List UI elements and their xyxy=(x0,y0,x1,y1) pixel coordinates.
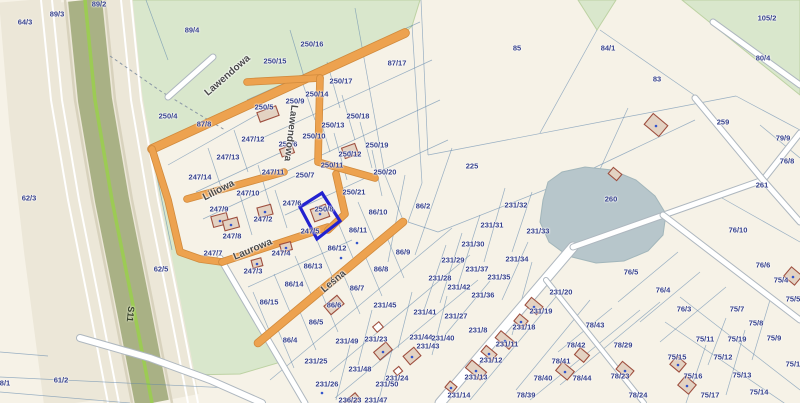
address-dot xyxy=(450,387,453,390)
address-dot xyxy=(520,321,523,324)
street-road xyxy=(247,78,320,82)
map-graphics xyxy=(0,0,800,403)
address-dot xyxy=(256,263,259,266)
address-dot xyxy=(624,370,627,373)
address-dot xyxy=(488,353,491,356)
address-dot xyxy=(475,370,478,373)
address-dot xyxy=(677,364,680,367)
address-dot xyxy=(219,220,222,223)
address-dot xyxy=(230,224,233,227)
address-dot xyxy=(264,211,267,214)
address-dot xyxy=(321,392,324,395)
address-dot xyxy=(356,242,359,245)
address-dot xyxy=(340,257,343,260)
address-dot xyxy=(333,305,336,308)
address-dot xyxy=(504,340,507,343)
address-dot xyxy=(285,247,288,250)
address-dot xyxy=(792,276,795,279)
map-canvas[interactable]: 89/289/364/389/487/8250/4250/16250/15250… xyxy=(0,0,800,403)
address-dot xyxy=(655,125,658,128)
address-dot xyxy=(382,351,385,354)
address-dot xyxy=(533,306,536,309)
address-dot xyxy=(564,371,567,374)
address-dot xyxy=(686,385,689,388)
address-dot xyxy=(411,356,414,359)
address-dot xyxy=(349,151,352,154)
address-dot xyxy=(319,213,322,216)
